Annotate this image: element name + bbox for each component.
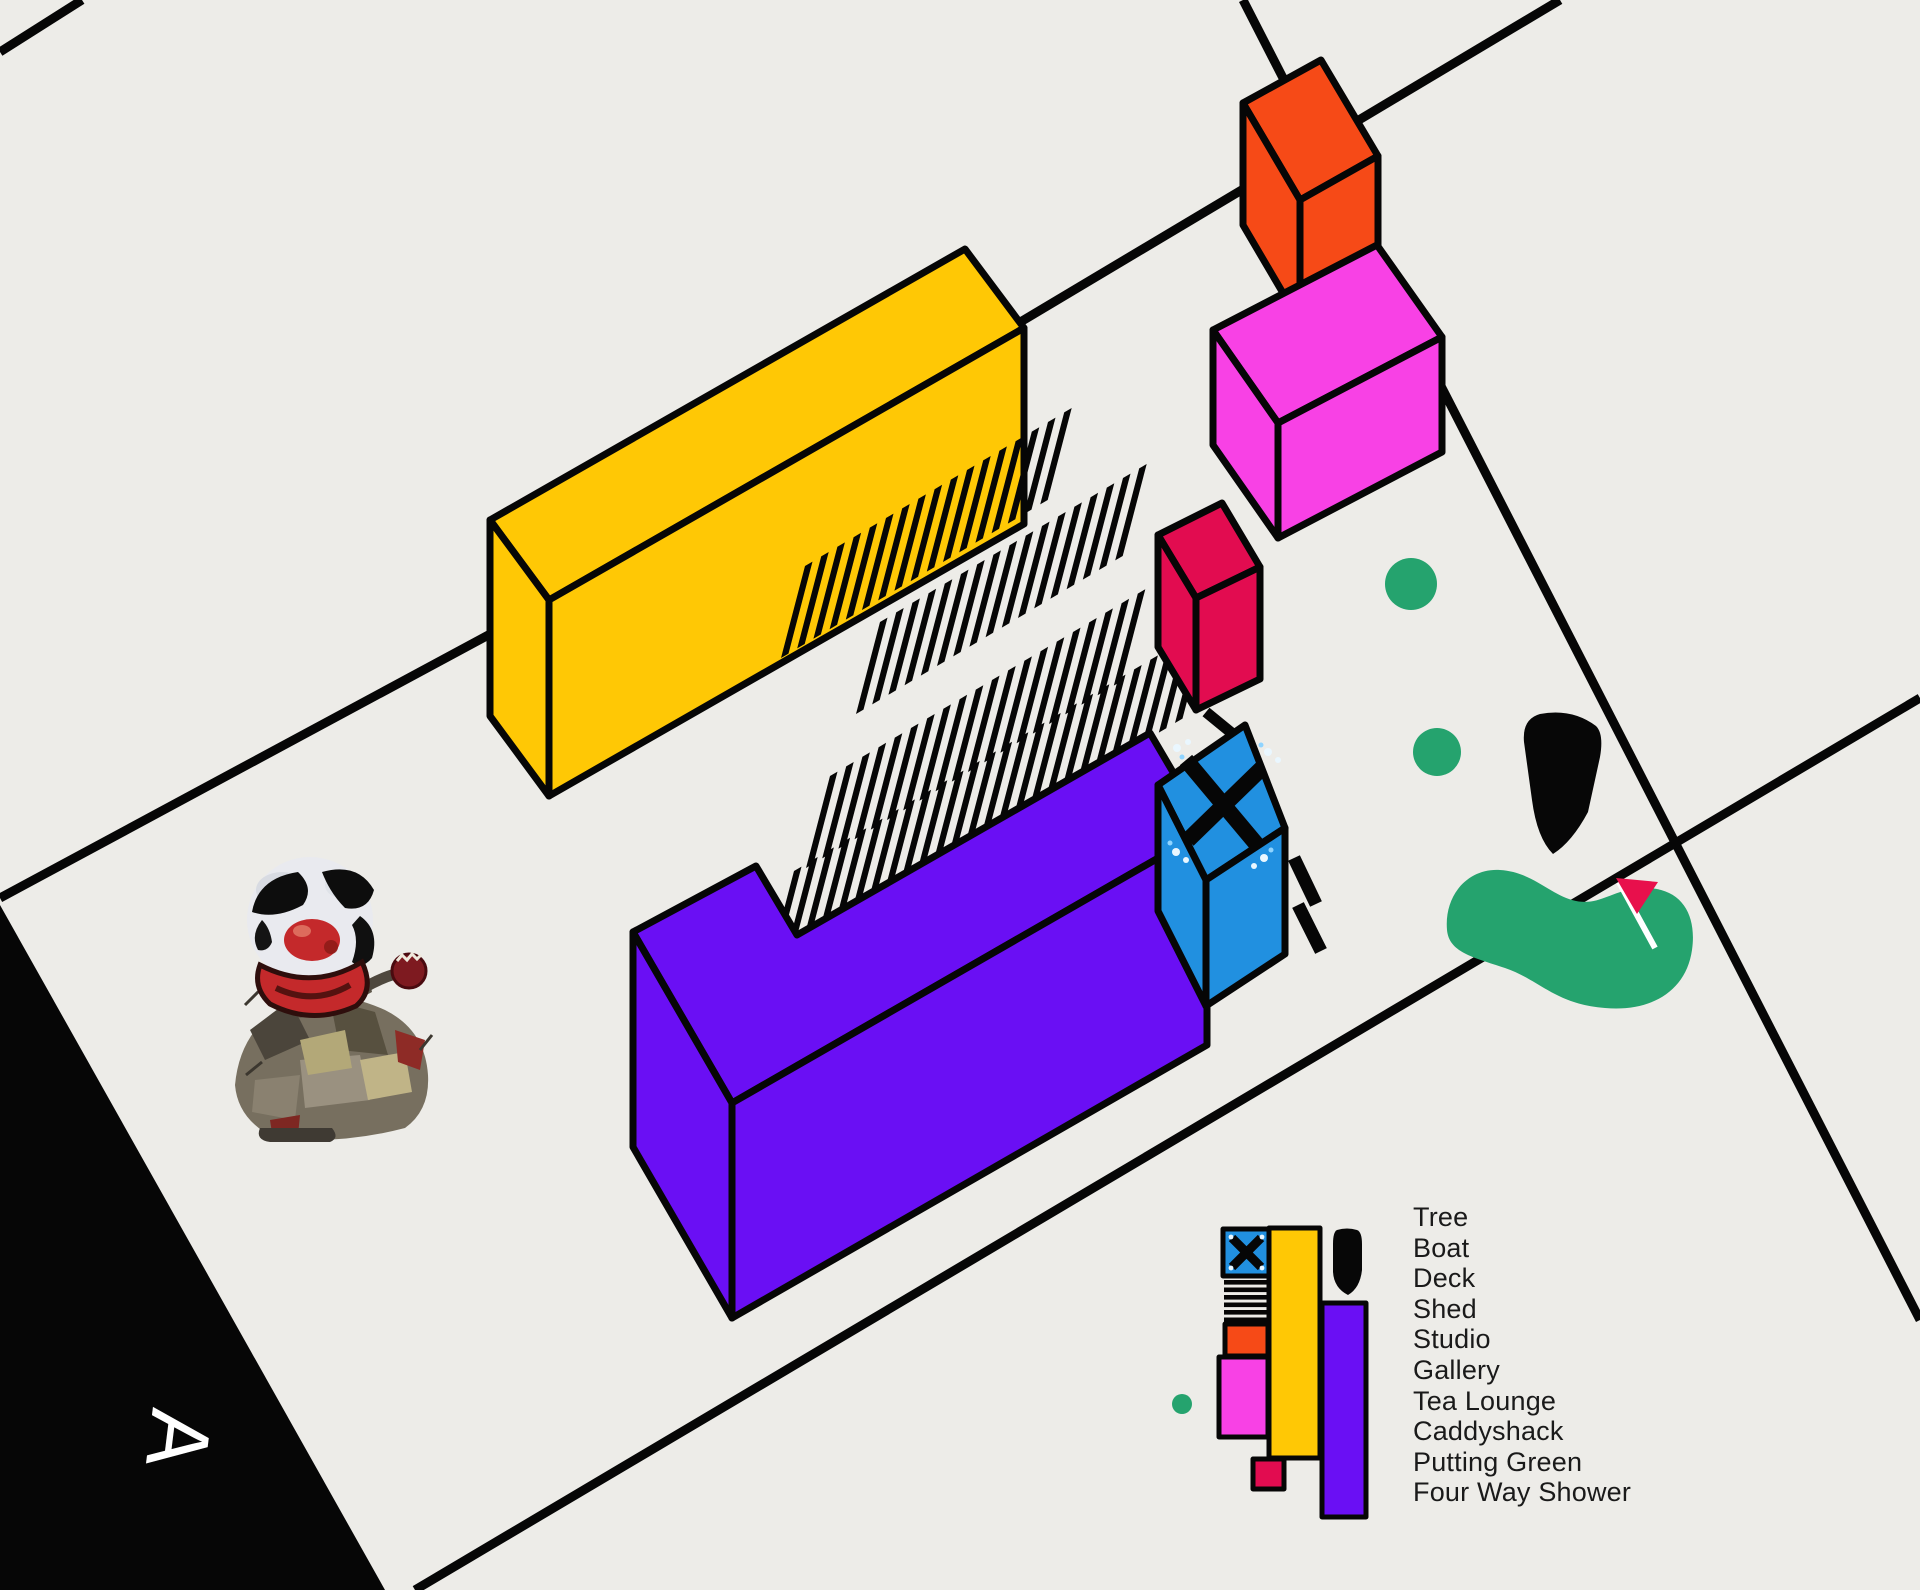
mini-shed [1269, 1228, 1320, 1458]
spray-drop [1259, 743, 1264, 748]
legend-label-deck: Deck [1413, 1263, 1631, 1294]
building-caddyshack [1158, 503, 1260, 710]
nose-speckle [324, 940, 338, 954]
legend-label-tea-lounge: Tea Lounge [1413, 1386, 1631, 1417]
legend-label-gallery: Gallery [1413, 1355, 1631, 1386]
spray-drop [1275, 757, 1281, 763]
mini-tea-lounge [1322, 1303, 1366, 1517]
lot-line-left [0, 618, 520, 898]
spray-drop [1173, 744, 1181, 752]
spray-drop [1269, 848, 1274, 853]
site-plan-drawing: A [0, 0, 1920, 1590]
nose-highlight [293, 925, 311, 937]
legend-minimap [1172, 1228, 1366, 1517]
mini-deck-stripe [1224, 1310, 1267, 1315]
mini-deck-stripes [1224, 1280, 1267, 1322]
spray-drop [1251, 863, 1257, 869]
clown-sculpture-image [235, 857, 432, 1142]
legend-label-boat: Boat [1413, 1233, 1631, 1264]
building-gallery [1213, 245, 1442, 538]
mini-deck-stripe [1224, 1303, 1267, 1308]
legend-label-four-way-shower: Four Way Shower [1413, 1477, 1631, 1508]
shower-shadow [1294, 858, 1316, 904]
legend-label-putting-green: Putting Green [1413, 1447, 1631, 1478]
shower-shadow [1298, 905, 1321, 951]
mini-boat-icon [1333, 1229, 1362, 1296]
legend-label-shed: Shed [1413, 1294, 1631, 1325]
tree-dot [1385, 558, 1437, 610]
boat-icon [1524, 713, 1602, 855]
spray-drop [1185, 739, 1191, 745]
mini-studio [1225, 1324, 1268, 1356]
mini-deck-stripe [1224, 1318, 1267, 1323]
lot-line-top-left [0, 0, 82, 52]
spray-drop [1183, 857, 1189, 863]
mini-spray [1260, 1235, 1265, 1240]
tree-dot [1413, 728, 1461, 776]
mini-spray [1229, 1266, 1234, 1271]
spray-drop [1260, 854, 1268, 862]
clown-nose [284, 919, 340, 961]
putting-green [1447, 870, 1693, 1009]
legend-label-tree: Tree [1413, 1202, 1631, 1233]
mini-deck-stripe [1224, 1280, 1267, 1285]
spray-drop [1168, 841, 1173, 846]
base [259, 1128, 336, 1142]
lot-lines [0, 0, 1920, 1590]
spray-drop [1180, 755, 1185, 760]
mini-caddyshack [1253, 1459, 1284, 1489]
mini-spray [1229, 1235, 1234, 1240]
mini-deck-stripe [1224, 1295, 1267, 1300]
legend-label-studio: Studio [1413, 1324, 1631, 1355]
mini-tree-dot [1172, 1394, 1192, 1414]
mini-gallery [1219, 1357, 1268, 1437]
legend-labels: Tree Boat Deck Shed Studio Gallery Tea L… [1413, 1202, 1631, 1508]
spray-drop [1172, 848, 1180, 856]
legend-label-caddyshack: Caddyshack [1413, 1416, 1631, 1447]
scrap-shard [252, 1075, 300, 1120]
spray-drop [1264, 748, 1272, 756]
site-plan-poster: A [0, 0, 1920, 1590]
mini-spray [1260, 1266, 1265, 1271]
mini-deck-stripe [1224, 1288, 1267, 1293]
putting-green-blob [1447, 870, 1693, 1009]
